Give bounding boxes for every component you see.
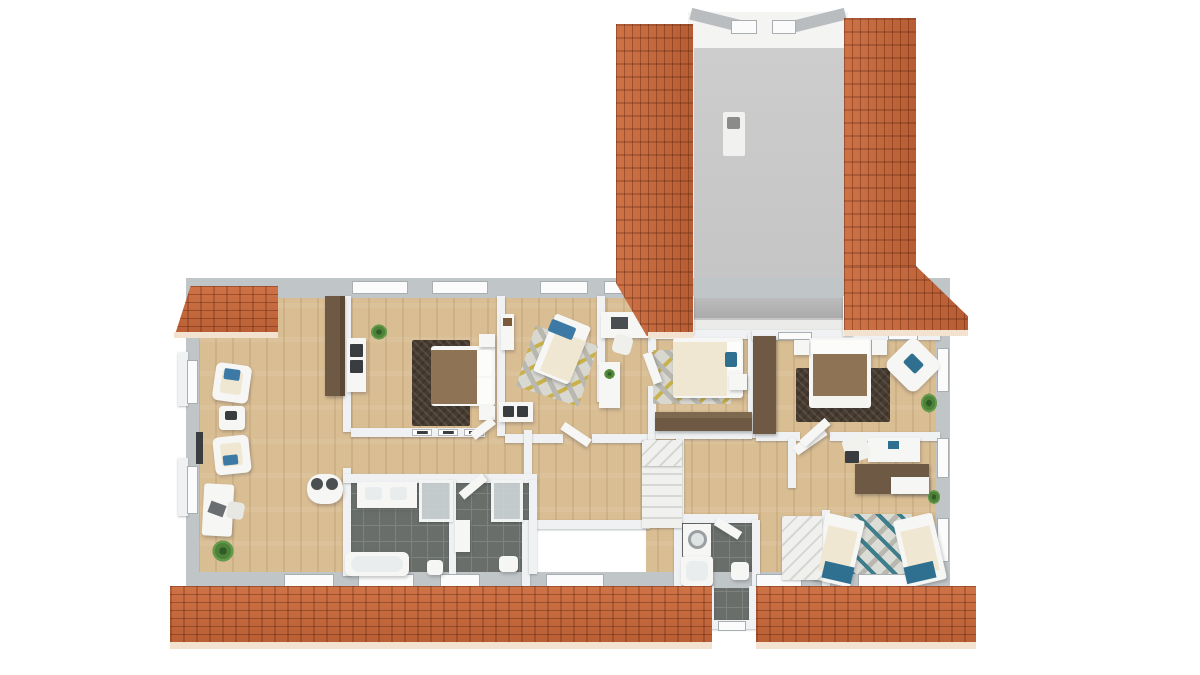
- chimney-flue: [727, 117, 740, 129]
- plant-office: [601, 366, 618, 382]
- window-right-2: [937, 438, 949, 478]
- roof-hip-top-left: [174, 286, 278, 338]
- roof-bottom-right-eave: [756, 642, 976, 649]
- plant-master: [916, 388, 942, 418]
- window-top-2: [432, 281, 488, 294]
- plant-living: [206, 534, 240, 568]
- bed1-pillow-1: [477, 350, 492, 376]
- wallbox-kids: [845, 451, 859, 463]
- desk-living-chair: [226, 501, 246, 521]
- burner-2: [326, 478, 338, 490]
- roof-strip-left: [616, 24, 693, 336]
- transom-slot-1: [412, 429, 432, 436]
- bed-master-pillows: [811, 340, 869, 355]
- wardrobe-master: [753, 336, 776, 434]
- armchair-1-pillow: [223, 368, 240, 381]
- roof-strip-left-eave: [648, 332, 693, 338]
- transom-slot-2: [438, 429, 458, 436]
- shower-bath-a: [419, 480, 453, 522]
- roof-bottom-right: [756, 586, 976, 648]
- floor-plan-canvas: [0, 0, 1200, 675]
- window-master-1: [778, 332, 812, 340]
- bathtub-bath-c-inner: [686, 561, 708, 581]
- window-bath-c: [718, 621, 746, 631]
- gable-vent-2: [772, 20, 796, 34]
- tv-panel: [196, 432, 203, 464]
- roof-bottom-left-eave: [170, 642, 712, 649]
- gable-vent-1: [731, 20, 757, 34]
- sink-a-1: [365, 487, 382, 500]
- plant-bed1: [366, 320, 392, 344]
- wardrobe-living-side: [340, 296, 345, 396]
- roof-bottom-left: [170, 586, 712, 648]
- bed-master-blanket: [813, 354, 867, 396]
- shower-bath-b: [491, 480, 523, 522]
- burner-1: [311, 478, 323, 490]
- toilet-bath-b: [499, 556, 518, 572]
- nightstand-master-b: [872, 340, 887, 355]
- bed4-blanket: [673, 342, 727, 396]
- washer-bath-c-door: [688, 530, 707, 549]
- staircase-main-winder: [642, 440, 682, 466]
- wall-bed2-bottom-a: [505, 434, 563, 443]
- dresser-bed2-drawer-a: [503, 406, 514, 417]
- window-left-2: [187, 466, 198, 514]
- toilet-bath-a: [427, 560, 443, 575]
- bed-master-foot: [813, 396, 867, 408]
- bed1-blanket: [431, 350, 477, 404]
- nightstand-bed4: [729, 374, 747, 390]
- wall-void-top: [522, 520, 650, 529]
- armchair-2-pillow: [223, 454, 239, 466]
- roof-ell-right-eave: [844, 330, 968, 336]
- desk-kids-item: [888, 441, 899, 449]
- toilet-bath-c: [731, 562, 749, 580]
- shelf-bath-b: [455, 520, 470, 552]
- nightstand-master-a: [794, 340, 809, 355]
- shelf-bed2-items: [503, 318, 512, 326]
- bathtub-bath-a-inner: [351, 556, 403, 572]
- void-room-floor: [530, 529, 646, 573]
- appliance-1: [350, 344, 363, 357]
- coffee-table-items: [225, 411, 237, 420]
- window-top-1: [352, 281, 408, 294]
- bed1-pillow-2: [477, 378, 492, 404]
- sideboard-kids-white: [891, 477, 929, 494]
- bed4-cushion: [725, 352, 737, 367]
- wall-bath-b-right: [529, 480, 537, 574]
- appliance-2: [350, 360, 363, 373]
- sink-a-2: [390, 487, 407, 500]
- nightstand-bed1-a: [479, 334, 495, 347]
- window-top-3: [540, 281, 588, 294]
- roof-hip-top-left-eave: [174, 332, 278, 338]
- staircase-side: [782, 516, 822, 580]
- wall-corridor: [524, 430, 532, 480]
- window-right-1: [937, 348, 949, 392]
- roof-ell-right: [844, 266, 968, 336]
- sideboard-bed4-top: [655, 412, 752, 418]
- roof-strip-right: [844, 18, 916, 270]
- window-left-1: [187, 360, 198, 404]
- wall-bed4-bottom: [656, 430, 752, 439]
- dresser-bed2-drawer-b: [517, 406, 528, 417]
- laptop-office: [611, 317, 628, 329]
